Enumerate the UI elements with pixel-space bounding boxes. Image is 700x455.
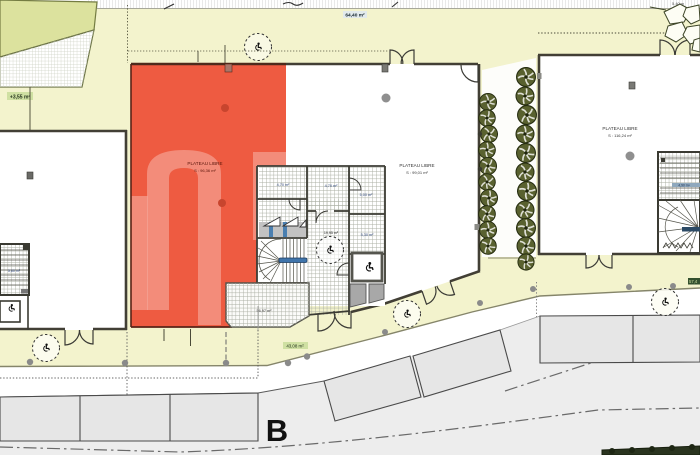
svg-text:PLATEAU LIBRE: PLATEAU LIBRE	[187, 161, 222, 166]
svg-text:+3,55 m²: +3,55 m²	[10, 95, 30, 101]
svg-text:B: B	[266, 413, 288, 448]
svg-text:4,70 m²: 4,70 m²	[277, 183, 291, 187]
svg-text:PLATEAU LIBRE: PLATEAU LIBRE	[602, 126, 637, 131]
svg-text:S : 99,01 m²: S : 99,01 m²	[406, 170, 428, 175]
svg-text:57,4: 57,4	[689, 279, 698, 284]
svg-text:S : 116,24 m²: S : 116,24 m²	[608, 133, 632, 138]
svg-text:4,90 m²: 4,90 m²	[678, 184, 690, 188]
svg-text:43,08 m²: 43,08 m²	[286, 344, 304, 349]
svg-text:64,40 m²: 64,40 m²	[345, 13, 365, 19]
svg-text:5,30 m²: 5,30 m²	[361, 233, 375, 237]
svg-text:5,60 m²: 5,60 m²	[8, 269, 21, 273]
svg-text:19,95 m²: 19,95 m²	[324, 231, 339, 235]
svg-text:56,97 m²: 56,97 m²	[257, 309, 273, 313]
svg-text:5,40 m: 5,40 m	[672, 1, 685, 6]
svg-text:PLATEAU LIBRE: PLATEAU LIBRE	[399, 163, 434, 168]
svg-text:5,00 m²: 5,00 m²	[360, 193, 374, 197]
svg-text:S : 96,36 m²: S : 96,36 m²	[194, 168, 216, 173]
svg-text:4,70 m²: 4,70 m²	[325, 184, 339, 188]
